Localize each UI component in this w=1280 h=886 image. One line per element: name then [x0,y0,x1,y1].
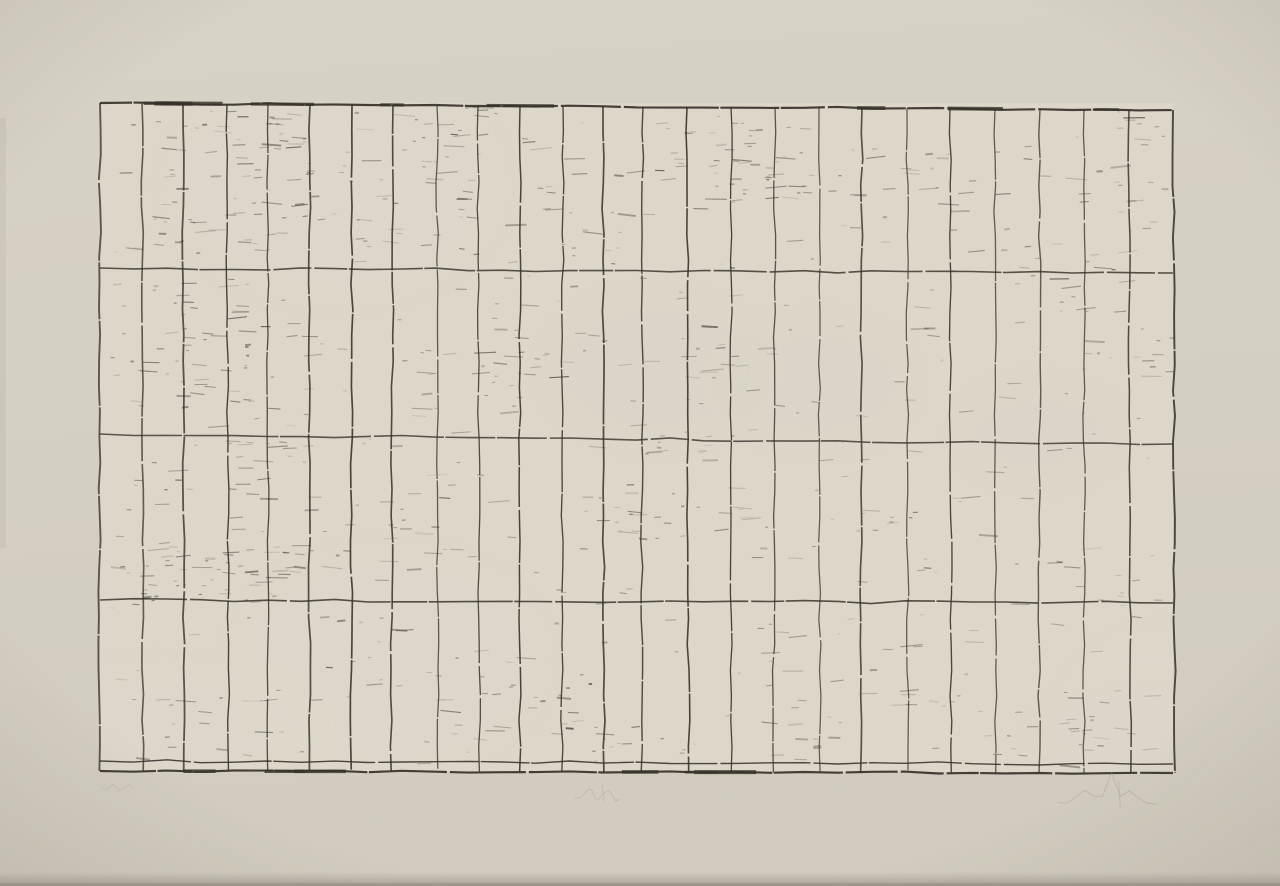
page: { "artwork": { "kind": "etching-grid-pri… [0,0,1280,886]
corner-vignette [0,0,1280,886]
left-edge-shadow [0,118,6,548]
etching-grid-print [0,0,1280,886]
artwork-scan [0,0,1280,886]
